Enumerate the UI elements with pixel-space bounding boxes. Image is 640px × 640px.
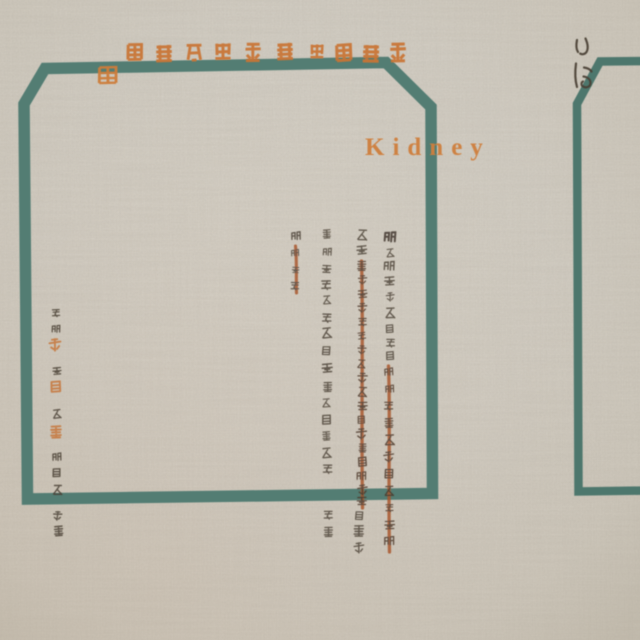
svg-text:Kidney: Kidney: [365, 134, 491, 161]
